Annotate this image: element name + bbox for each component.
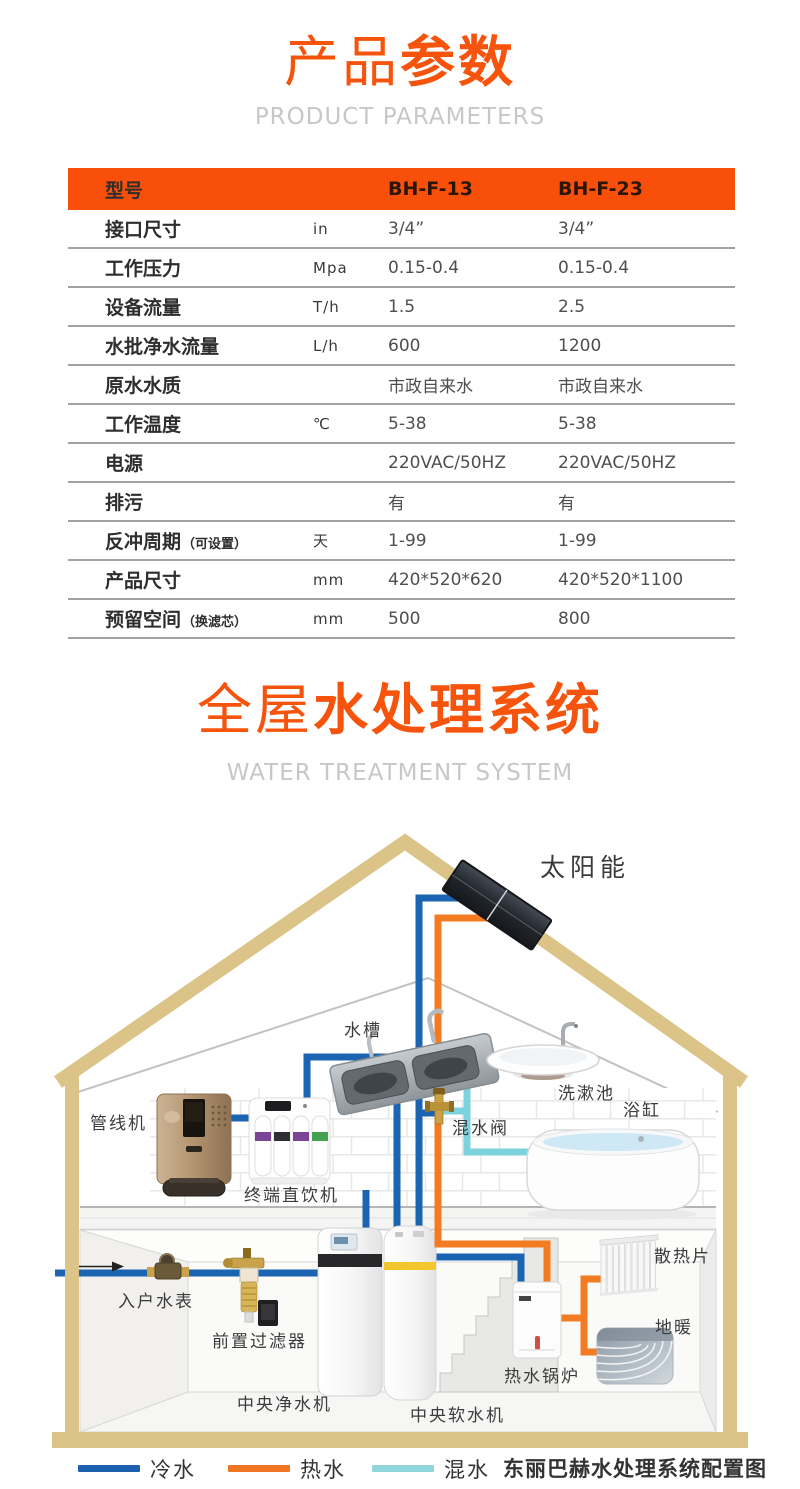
row-label: 接口尺寸	[105, 219, 181, 241]
label-terminal-purifier: 终端直饮机	[244, 1181, 339, 1206]
label-bathtub: 浴缸	[623, 1096, 661, 1121]
row-label: 反冲周期	[105, 531, 181, 553]
row-value-b: 800	[558, 609, 735, 629]
section2-title-light: 全屋	[197, 678, 313, 742]
label-central-purifier: 中央净水机	[237, 1390, 332, 1415]
hot-water-boiler	[513, 1282, 561, 1358]
table-row: 产品尺寸 mm 420*520*620 420*520*1100	[68, 561, 735, 600]
legend-hot-label: 热水	[300, 1454, 346, 1484]
title-bold: 参数	[400, 30, 516, 94]
row-label: 水批净水流量	[105, 336, 219, 358]
label-water-meter: 入户水表	[118, 1287, 194, 1312]
product-page: 产品参数 PRODUCT PARAMETERS 型号 BH-F-13 BH-F-…	[0, 0, 800, 1489]
label-pipeline-machine: 管线机	[90, 1109, 147, 1134]
row-value-a: 220VAC/50HZ	[388, 453, 558, 473]
row-note: （换滤芯）	[182, 615, 247, 630]
row-value-a: 1.5	[388, 297, 558, 317]
page-title: 产品参数	[0, 34, 800, 92]
label-pre-filter: 前置过滤器	[212, 1327, 307, 1352]
row-value-b: 420*520*1100	[558, 570, 735, 590]
row-value-b: 市政自来水	[558, 372, 735, 397]
row-value-b: 2.5	[558, 297, 735, 317]
row-value-b: 5-38	[558, 414, 735, 434]
row-label: 设备流量	[105, 297, 181, 319]
header-model-b: BH-F-23	[558, 178, 735, 200]
row-label: 工作压力	[105, 258, 181, 280]
row-note: （可设置）	[182, 537, 247, 552]
table-row: 原水水质 市政自来水 市政自来水	[68, 366, 735, 405]
table-row: 排污 有 有	[68, 483, 735, 522]
table-row: 水批净水流量 L/h 600 1200	[68, 327, 735, 366]
row-value-a: 500	[388, 609, 558, 629]
section2-title-bold: 水处理系统	[313, 678, 603, 742]
central-softener	[384, 1226, 436, 1400]
house-base-bar	[52, 1432, 748, 1448]
row-unit: in	[313, 220, 388, 238]
row-unit: Mpa	[313, 259, 388, 277]
central-purifier	[318, 1228, 382, 1396]
legend-cold-line	[78, 1465, 140, 1472]
table-row: 电源 220VAC/50HZ 220VAC/50HZ	[68, 444, 735, 483]
label-solar: 太阳能	[540, 848, 630, 884]
row-value-b: 0.15-0.4	[558, 258, 735, 278]
table-header-row: 型号 BH-F-13 BH-F-23	[68, 168, 735, 210]
label-boiler: 热水锅炉	[504, 1362, 580, 1387]
row-value-a: 1-99	[388, 531, 558, 551]
row-label: 预留空间	[105, 609, 181, 631]
page-subtitle: PRODUCT PARAMETERS	[0, 104, 800, 130]
row-unit: 天	[313, 530, 388, 551]
row-label: 原水水质	[105, 375, 181, 397]
legend-mixed-line	[372, 1465, 434, 1472]
row-label: 工作温度	[105, 414, 181, 436]
title-light: 产品	[284, 30, 400, 94]
table-row: 预留空间（换滤芯） mm 500 800	[68, 600, 735, 639]
row-value-b: 1200	[558, 336, 735, 356]
row-value-a: 5-38	[388, 414, 558, 434]
table-row: 工作温度 ℃ 5-38 5-38	[68, 405, 735, 444]
table-row: 工作压力 Mpa 0.15-0.4 0.15-0.4	[68, 249, 735, 288]
section2-title: 全屋水处理系统	[0, 682, 800, 740]
row-label: 产品尺寸	[105, 570, 181, 592]
row-label: 电源	[105, 453, 143, 475]
row-value-a: 600	[388, 336, 558, 356]
header-model-a: BH-F-13	[388, 178, 558, 200]
row-value-b: 1-99	[558, 531, 735, 551]
table-row: 反冲周期（可设置） 天 1-99 1-99	[68, 522, 735, 561]
label-central-softener: 中央软水机	[410, 1401, 505, 1426]
diagram-canvas	[0, 830, 800, 1489]
legend-caption: 东丽巴赫水处理系统配置图	[503, 1453, 767, 1483]
terminal-purifier	[249, 1098, 330, 1184]
row-value-a: 0.15-0.4	[388, 258, 558, 278]
row-value-b: 有	[558, 489, 735, 514]
row-unit: mm	[313, 571, 388, 589]
table-row: 接口尺寸 in 3/4” 3/4”	[68, 210, 735, 249]
row-value-a: 有	[388, 489, 558, 514]
pipeline-machine	[157, 1094, 231, 1196]
row-value-a: 420*520*620	[388, 570, 558, 590]
row-value-b: 3/4”	[558, 219, 735, 239]
legend-hot-line	[228, 1465, 290, 1472]
label-floor-heating: 地暖	[655, 1313, 693, 1338]
row-unit: L/h	[313, 337, 388, 355]
legend-mixed-label: 混水	[444, 1454, 490, 1484]
section2-subtitle: WATER TREATMENT SYSTEM	[0, 760, 800, 786]
header-model: 型号	[68, 176, 313, 203]
table-row: 设备流量 T/h 1.5 2.5	[68, 288, 735, 327]
bathtub	[527, 1129, 699, 1220]
wash-basin	[487, 1024, 599, 1080]
label-sink: 水槽	[344, 1016, 382, 1041]
legend-cold-label: 冷水	[150, 1454, 196, 1484]
row-unit: mm	[313, 610, 388, 628]
solar-panel	[442, 860, 552, 950]
label-mixing-valve: 混水阀	[452, 1114, 509, 1139]
row-value-b: 220VAC/50HZ	[558, 453, 735, 473]
radiator	[600, 1235, 658, 1296]
parameters-table: 型号 BH-F-13 BH-F-23 接口尺寸 in 3/4” 3/4” 工作压…	[68, 168, 735, 639]
label-wash-basin: 洗漱池	[558, 1079, 615, 1104]
row-label: 排污	[105, 492, 143, 514]
label-radiator: 散热片	[654, 1242, 711, 1267]
table-body: 接口尺寸 in 3/4” 3/4” 工作压力 Mpa 0.15-0.4 0.15…	[68, 210, 735, 639]
row-value-a: 3/4”	[388, 219, 558, 239]
water-system-diagram: 太阳能 水槽 管线机 终端直饮机 混水阀 洗漱池 浴缸 入户水表 前置过滤器 中…	[0, 830, 800, 1489]
row-value-a: 市政自来水	[388, 372, 558, 397]
row-unit: ℃	[313, 415, 388, 433]
row-unit: T/h	[313, 298, 388, 316]
